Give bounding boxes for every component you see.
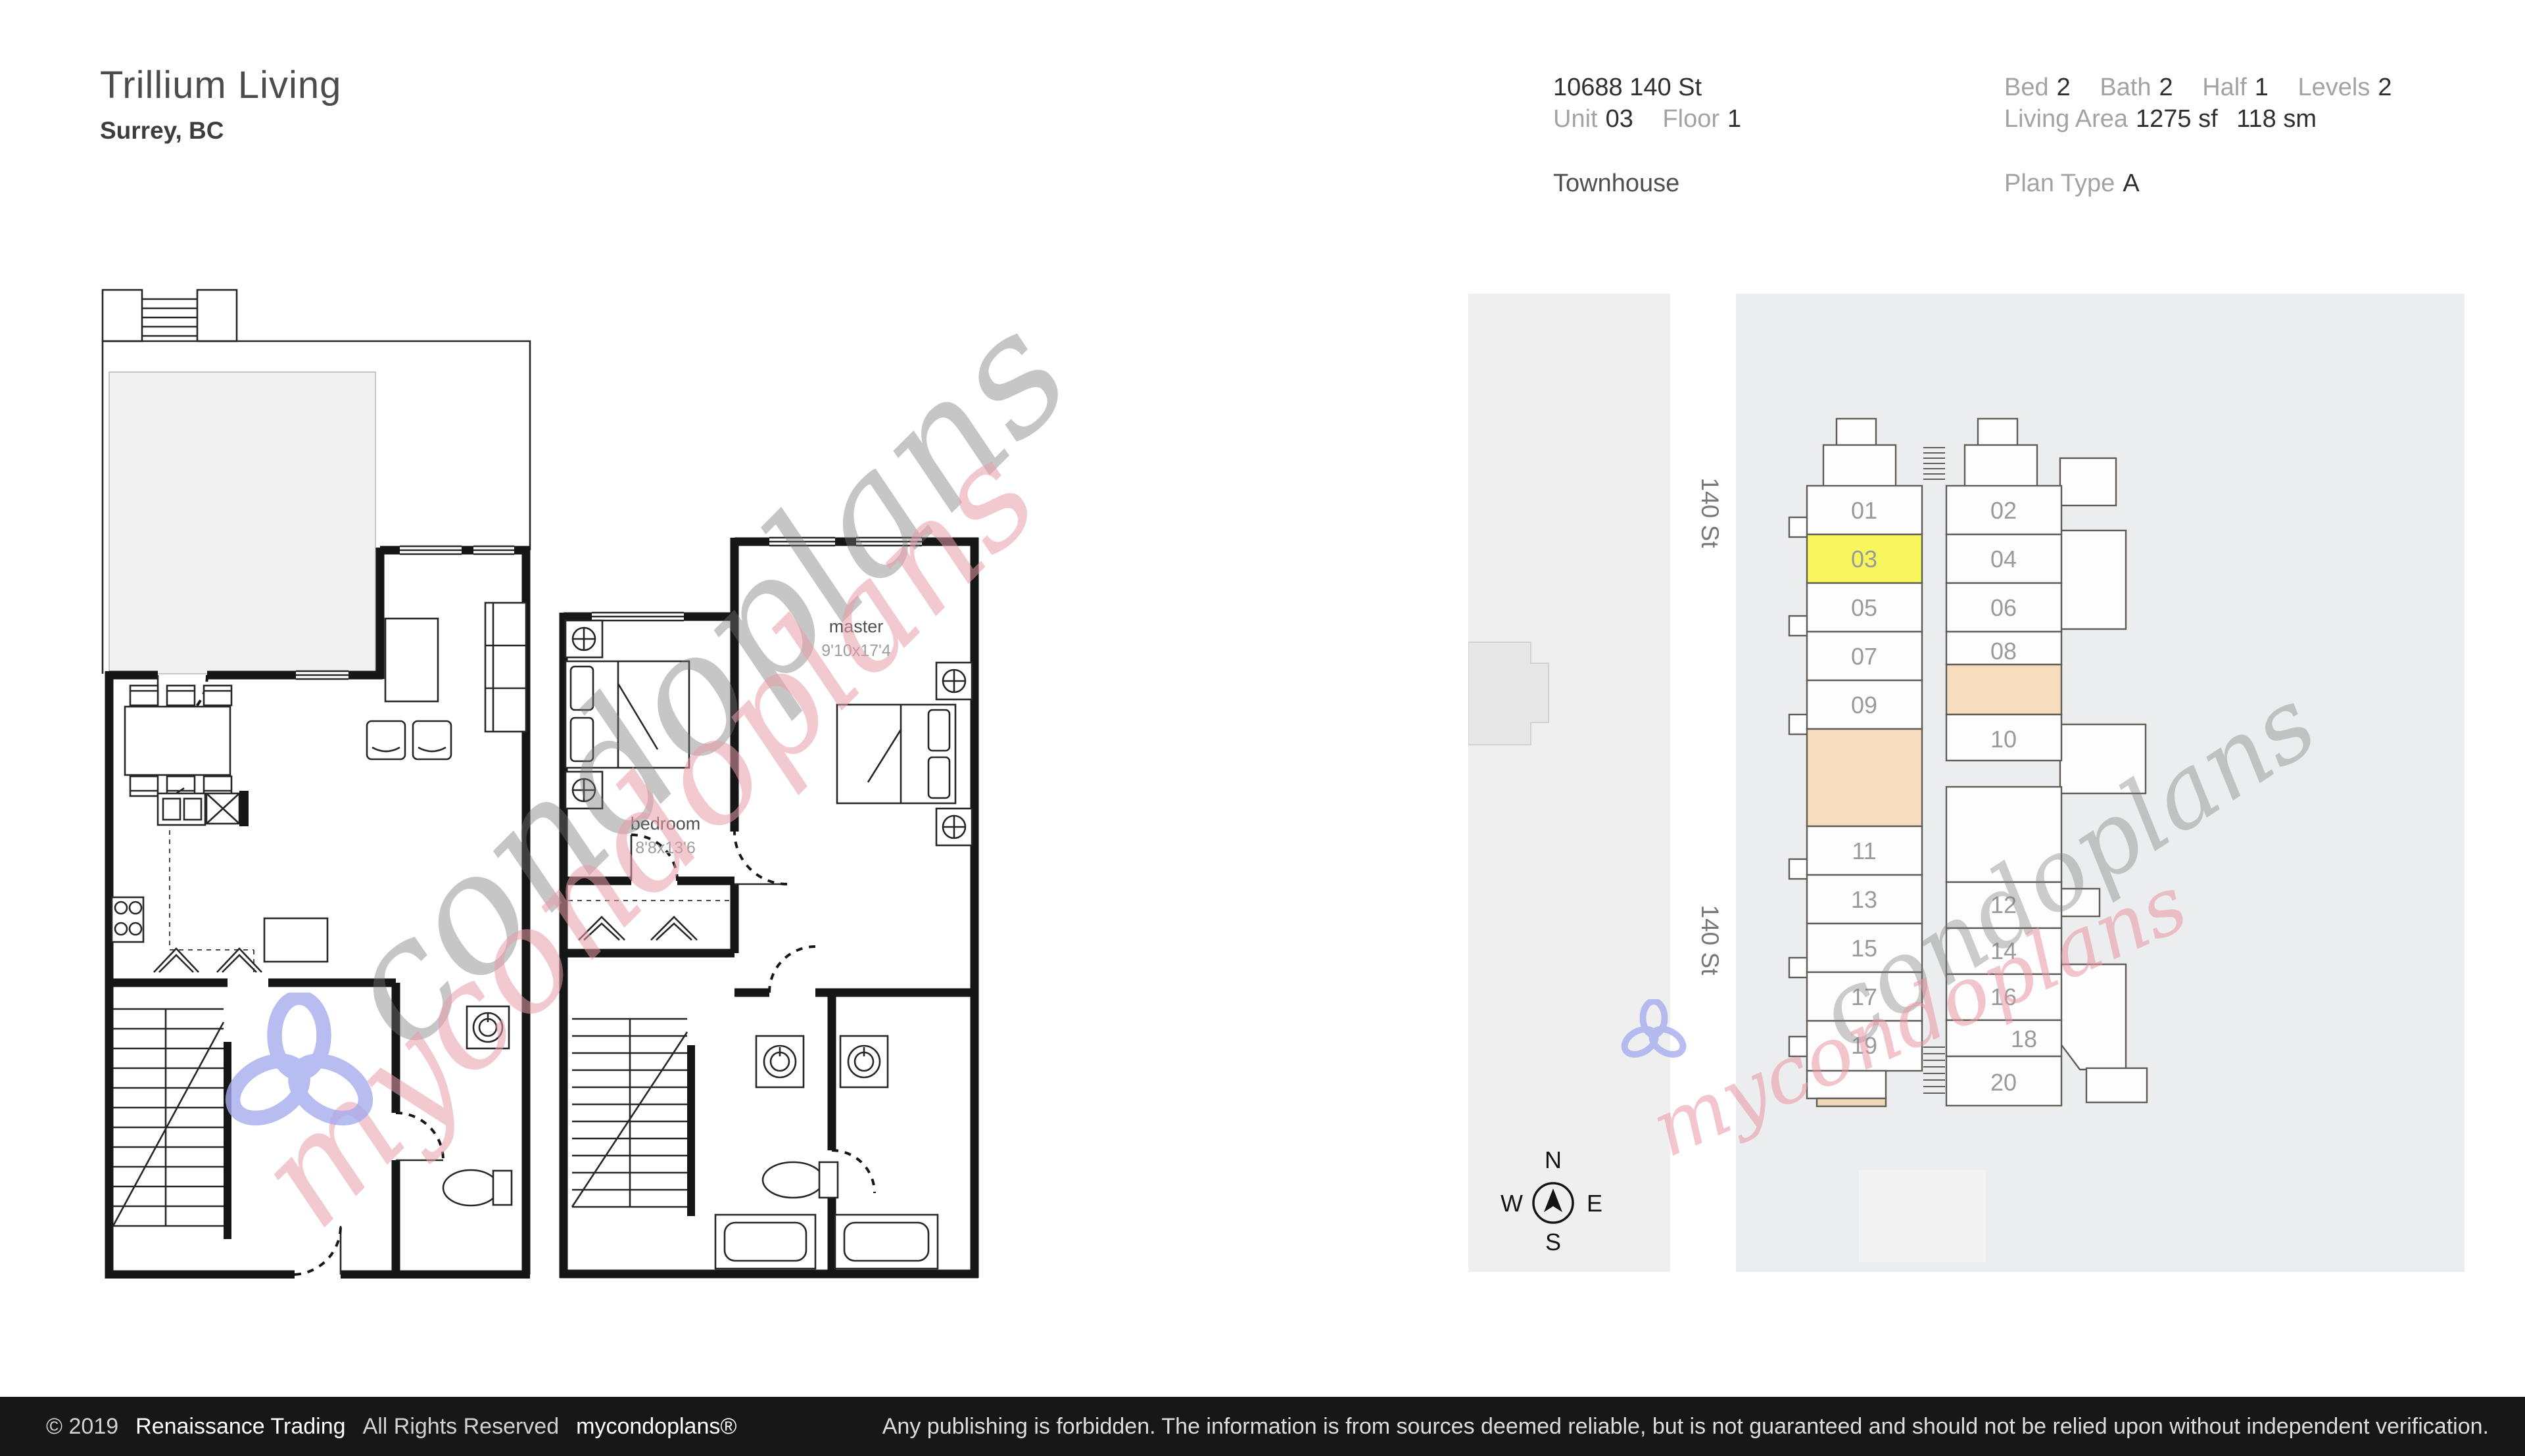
stairs <box>572 1019 695 1216</box>
site-plan: 140 St 140 St <box>1468 294 2465 1273</box>
site-unit-number: 14 <box>1990 937 2017 964</box>
property-type: Townhouse <box>1553 170 1679 198</box>
street-label-top: 140 St <box>1696 478 1723 549</box>
living-area-sf: 1275 sf <box>2136 105 2218 133</box>
site-unit-number: 11 <box>1852 837 1876 864</box>
levels-value: 2 <box>2378 74 2392 101</box>
room-label-bedroom: bedroom <box>631 814 701 834</box>
bed-value: 2 <box>2057 74 2071 101</box>
stairs <box>113 1009 231 1239</box>
trillium-logo-icon-site <box>1618 999 1690 1071</box>
footer-brand: mycondoplans® <box>576 1414 736 1440</box>
deck-post <box>197 290 237 341</box>
site-unit-number: 15 <box>1851 935 1877 962</box>
footer-company: Renaissance Trading <box>135 1414 345 1440</box>
living-room <box>367 603 526 759</box>
site-unit-number: 06 <box>1990 594 2017 621</box>
trillium-logo-icon <box>217 993 381 1157</box>
site-unit-number: 20 <box>1990 1069 2017 1096</box>
compass-south: S <box>1545 1229 1561 1256</box>
plan-type-line: Plan TypeA <box>2004 170 2162 198</box>
footer-left: © 2019 Renaissance Trading All Rights Re… <box>46 1397 754 1456</box>
living-area-sm: 118 sm <box>2236 105 2317 133</box>
site-unit-number: 03 <box>1851 546 1877 573</box>
site-unit-number: 08 <box>1990 638 2017 665</box>
unit-value: 03 <box>1606 105 1633 133</box>
footer-copyright: © 2019 <box>46 1414 118 1440</box>
floor-value: 1 <box>1727 105 1741 133</box>
bed-bath-line: Bed2 Bath2 Half1 Levels2 <box>2004 74 2414 102</box>
footer-disclaimer: Any publishing is forbidden. The informa… <box>882 1397 2489 1456</box>
patio-area <box>109 372 375 674</box>
half-label: Half <box>2202 74 2247 101</box>
bed-label: Bed <box>2004 74 2049 101</box>
plan-type-value: A <box>2123 170 2139 197</box>
street-label-bottom: 140 St <box>1696 905 1723 976</box>
footer-rights: All Rights Reserved <box>363 1414 560 1440</box>
powder-room <box>443 1006 512 1206</box>
living-area-label: Living Area <box>2004 105 2128 133</box>
plan-type-label: Plan Type <box>2004 170 2115 197</box>
street-road <box>1468 294 1670 1272</box>
site-unit-number: 13 <box>1851 886 1877 913</box>
site-unit-number: 09 <box>1851 692 1877 718</box>
site-unit-number: 19 <box>1851 1032 1877 1059</box>
unit-label: Unit <box>1553 105 1598 133</box>
site-unit-number: 02 <box>1990 497 2017 524</box>
site-unit-number: 12 <box>1990 891 2017 918</box>
dining-table <box>125 686 231 796</box>
page-title: Trillium Living <box>100 63 341 107</box>
bath-value: 2 <box>2159 74 2173 101</box>
compass-north: N <box>1545 1146 1562 1173</box>
bedroom <box>565 621 689 809</box>
site-unit-number: 10 <box>1990 726 2017 753</box>
site-unit-number: 07 <box>1851 643 1877 670</box>
compass-east: E <box>1587 1190 1602 1217</box>
compass-west: W <box>1501 1190 1523 1217</box>
site-unit-number: 05 <box>1851 594 1877 621</box>
half-value: 1 <box>2255 74 2269 101</box>
kitchen <box>112 788 327 972</box>
windows <box>592 537 922 621</box>
unit-floor-line: Unit03 Floor1 <box>1553 105 1764 133</box>
master-bedroom <box>837 663 972 845</box>
page-subtitle-city: Surrey, BC <box>100 117 224 145</box>
site-unit-number: 16 <box>1990 983 2017 1010</box>
room-dims-master: 9'10x17'4 <box>821 642 891 660</box>
room-dims-bedroom: 8'8x13'6 <box>635 839 696 857</box>
powder-door-arc <box>396 1113 443 1160</box>
levels-label: Levels <box>2297 74 2370 101</box>
page: Trillium Living Surrey, BC 10688 140 St … <box>0 0 2525 1456</box>
closet-bifold-doors <box>154 949 262 972</box>
site-unit-number: 18 <box>2011 1025 2037 1052</box>
site-unit-number: 01 <box>1851 497 1877 524</box>
exterior-walls <box>560 538 978 1278</box>
bathroom-fixtures <box>715 1036 938 1269</box>
second-floor-plan: bedroom 8'8x13'6 master 9'10x17'4 <box>552 532 986 1282</box>
listing-address: 10688 140 St <box>1553 74 1702 102</box>
site-unit-number: 04 <box>1990 546 2017 573</box>
closet-bifold-doors <box>568 901 730 940</box>
footer-bar: © 2019 Renaissance Trading All Rights Re… <box>0 1397 2525 1456</box>
bath-label: Bath <box>2100 74 2151 101</box>
site-unit-number: 17 <box>1851 983 1877 1010</box>
floor-label: Floor <box>1662 105 1719 133</box>
room-label-master: master <box>829 617 884 636</box>
deck-stairs <box>142 299 197 336</box>
living-area-line: Living Area1275 sf 118 sm <box>2004 105 2339 133</box>
deck-post <box>103 290 142 341</box>
driveway-pad <box>1859 1170 1986 1262</box>
